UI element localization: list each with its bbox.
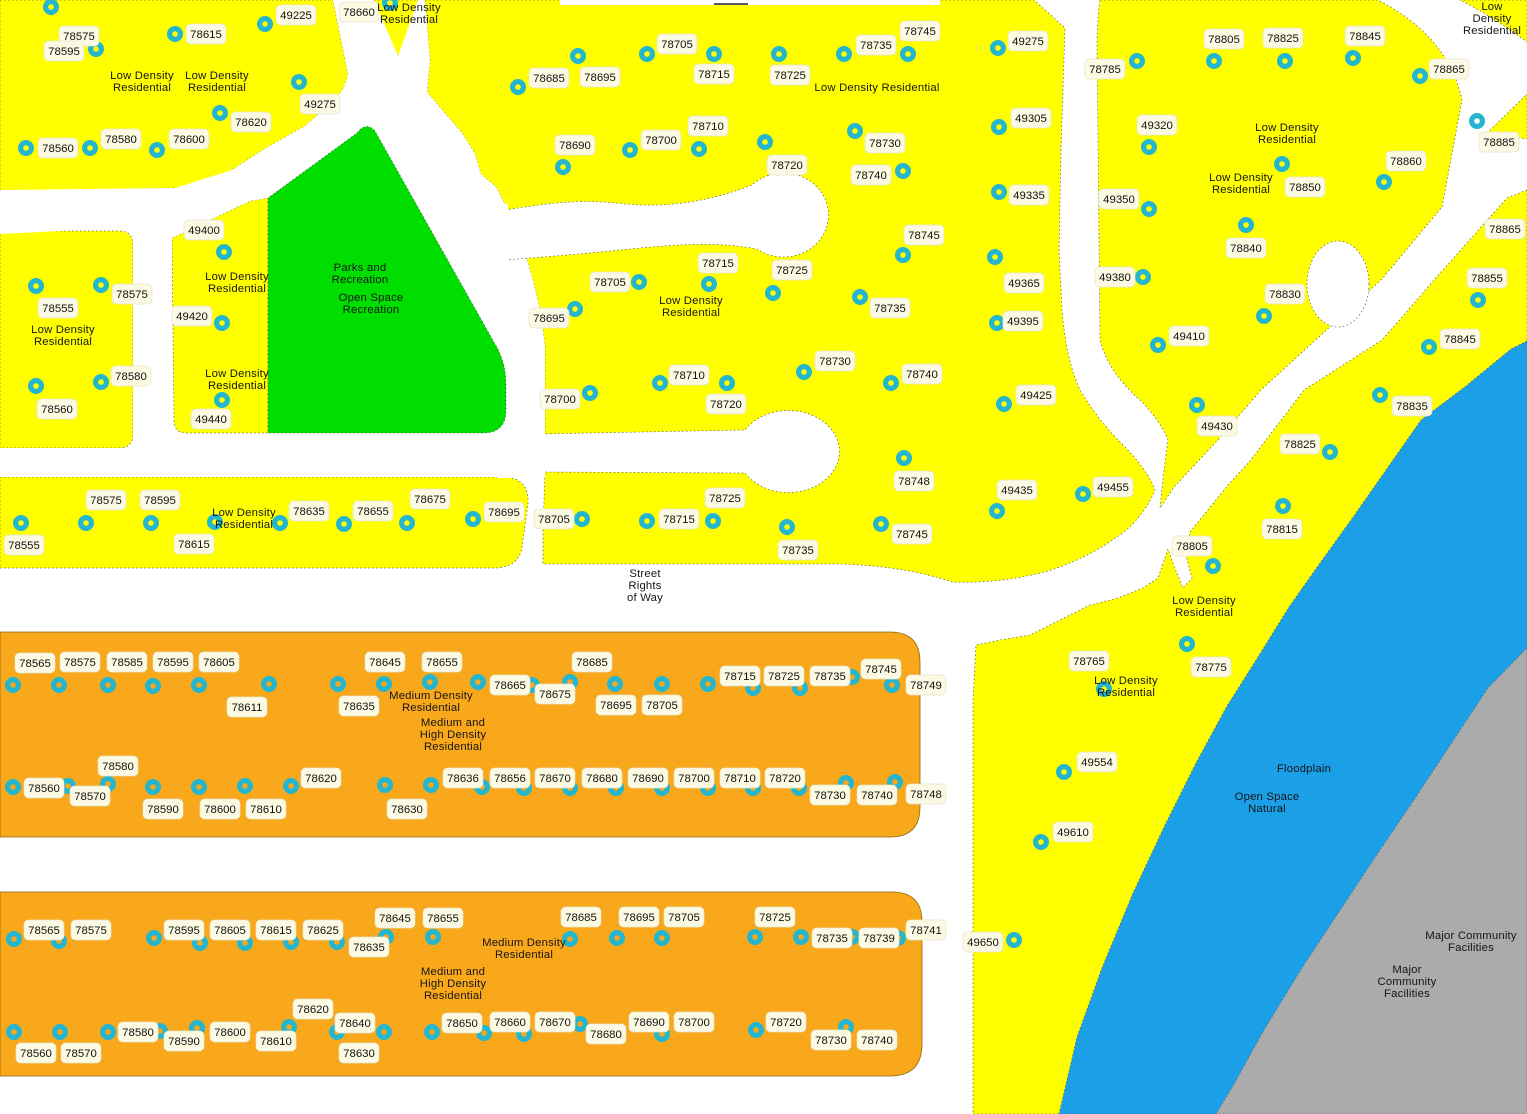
svg-text:78700: 78700 — [544, 394, 576, 406]
svg-text:Low DensityResidential: Low DensityResidential — [1209, 172, 1273, 196]
svg-text:78720: 78720 — [770, 1017, 802, 1029]
svg-text:78640: 78640 — [339, 1018, 371, 1030]
svg-text:78715: 78715 — [702, 258, 734, 270]
svg-text:Low DensityResidential: Low DensityResidential — [31, 324, 95, 348]
svg-text:78660: 78660 — [494, 1017, 526, 1029]
svg-text:78765: 78765 — [1073, 656, 1105, 668]
svg-text:78735: 78735 — [816, 933, 848, 945]
svg-text:78805: 78805 — [1176, 541, 1208, 553]
svg-text:78835: 78835 — [1396, 401, 1428, 413]
svg-text:78575: 78575 — [116, 289, 148, 301]
svg-text:78860: 78860 — [1390, 156, 1422, 168]
svg-text:78690: 78690 — [632, 773, 664, 785]
svg-text:78685: 78685 — [565, 912, 597, 924]
svg-text:78685: 78685 — [533, 73, 565, 85]
svg-text:Low DensityResidential: Low DensityResidential — [212, 507, 276, 531]
svg-text:78705: 78705 — [594, 277, 626, 289]
svg-text:78660: 78660 — [343, 7, 375, 19]
svg-text:Low DensityResidential: Low DensityResidential — [205, 271, 269, 295]
svg-text:78705: 78705 — [661, 39, 693, 51]
svg-text:78595: 78595 — [157, 657, 189, 669]
svg-text:78685: 78685 — [576, 657, 608, 669]
svg-text:78745: 78745 — [865, 664, 897, 676]
svg-text:78615: 78615 — [178, 539, 210, 551]
svg-text:49400: 49400 — [188, 225, 220, 237]
svg-text:78775: 78775 — [1195, 662, 1227, 674]
svg-text:78645: 78645 — [379, 913, 411, 925]
svg-text:78575: 78575 — [75, 925, 107, 937]
svg-text:78745: 78745 — [908, 230, 940, 242]
svg-text:78635: 78635 — [353, 942, 385, 954]
svg-text:78748: 78748 — [910, 789, 942, 801]
svg-text:49430: 49430 — [1201, 421, 1233, 433]
svg-text:Low DensityResidential: Low DensityResidential — [1255, 122, 1319, 146]
svg-text:78656: 78656 — [494, 773, 526, 785]
svg-text:78680: 78680 — [590, 1029, 622, 1041]
svg-text:78825: 78825 — [1284, 439, 1316, 451]
svg-text:49305: 49305 — [1015, 113, 1047, 125]
svg-text:StreetRightsof Way: StreetRightsof Way — [627, 568, 663, 604]
svg-text:78560: 78560 — [41, 404, 73, 416]
svg-text:78720: 78720 — [710, 399, 742, 411]
svg-text:78570: 78570 — [65, 1048, 97, 1060]
svg-text:Floodplain: Floodplain — [1277, 763, 1331, 775]
svg-text:78600: 78600 — [173, 134, 205, 146]
svg-text:78700: 78700 — [678, 773, 710, 785]
svg-text:78710: 78710 — [724, 773, 756, 785]
svg-text:49425: 49425 — [1020, 390, 1052, 402]
svg-text:Parks andRecreation: Parks andRecreation — [332, 262, 389, 286]
svg-text:78720: 78720 — [769, 773, 801, 785]
svg-text:78720: 78720 — [771, 160, 803, 172]
svg-text:78675: 78675 — [539, 689, 571, 701]
svg-text:78670: 78670 — [539, 1017, 571, 1029]
svg-text:49380: 49380 — [1099, 272, 1131, 284]
svg-text:78741: 78741 — [910, 925, 942, 937]
svg-text:78865: 78865 — [1489, 224, 1521, 236]
svg-text:78636: 78636 — [447, 773, 479, 785]
svg-text:Open SpaceRecreation: Open SpaceRecreation — [339, 292, 404, 316]
svg-text:49455: 49455 — [1097, 482, 1129, 494]
svg-text:78725: 78725 — [768, 671, 800, 683]
svg-text:78785: 78785 — [1089, 64, 1121, 76]
svg-text:78670: 78670 — [539, 773, 571, 785]
svg-text:49335: 49335 — [1013, 190, 1045, 202]
svg-text:78675: 78675 — [414, 494, 446, 506]
svg-text:78590: 78590 — [168, 1036, 200, 1048]
svg-text:Low DensityResidential: Low DensityResidential — [110, 70, 174, 94]
svg-text:78825: 78825 — [1267, 33, 1299, 45]
svg-text:78725: 78725 — [709, 493, 741, 505]
svg-text:78620: 78620 — [305, 773, 337, 785]
svg-text:49225: 49225 — [280, 10, 312, 22]
svg-text:78690: 78690 — [633, 1017, 665, 1029]
svg-text:78580: 78580 — [122, 1027, 154, 1039]
svg-text:78565: 78565 — [19, 658, 51, 670]
svg-text:78570: 78570 — [74, 791, 106, 803]
svg-text:78705: 78705 — [668, 912, 700, 924]
svg-text:78850: 78850 — [1289, 182, 1321, 194]
svg-text:Low DensityResidential: Low DensityResidential — [1094, 675, 1158, 699]
svg-text:78730: 78730 — [819, 356, 851, 368]
svg-text:78715: 78715 — [698, 69, 730, 81]
svg-text:78830: 78830 — [1269, 289, 1301, 301]
svg-text:78885: 78885 — [1483, 137, 1515, 149]
svg-text:78740: 78740 — [906, 369, 938, 381]
svg-text:Medium andHigh DensityResident: Medium andHigh DensityResidential — [420, 966, 487, 1002]
svg-text:78739: 78739 — [863, 933, 895, 945]
svg-text:78630: 78630 — [391, 804, 423, 816]
svg-text:78725: 78725 — [776, 265, 808, 277]
svg-text:78730: 78730 — [869, 138, 901, 150]
svg-text:78865: 78865 — [1433, 64, 1465, 76]
svg-text:78700: 78700 — [678, 1017, 710, 1029]
svg-text:78560: 78560 — [42, 143, 74, 155]
svg-text:78580: 78580 — [102, 761, 134, 773]
svg-text:78845: 78845 — [1349, 31, 1381, 43]
svg-text:78655: 78655 — [426, 657, 458, 669]
svg-text:78695: 78695 — [600, 700, 632, 712]
svg-text:49440: 49440 — [195, 414, 227, 426]
svg-text:78740: 78740 — [861, 790, 893, 802]
svg-text:78610: 78610 — [250, 804, 282, 816]
svg-text:78560: 78560 — [20, 1048, 52, 1060]
svg-text:78615: 78615 — [260, 925, 292, 937]
svg-text:78695: 78695 — [623, 912, 655, 924]
svg-text:78745: 78745 — [896, 529, 928, 541]
svg-text:78615: 78615 — [190, 29, 222, 41]
svg-text:78745: 78745 — [904, 26, 936, 38]
svg-text:78645: 78645 — [369, 657, 401, 669]
svg-text:78695: 78695 — [533, 313, 565, 325]
svg-text:78635: 78635 — [293, 506, 325, 518]
svg-text:78815: 78815 — [1266, 524, 1298, 536]
svg-text:Low DensityResidential: Low DensityResidential — [205, 368, 269, 392]
svg-text:78611: 78611 — [232, 702, 263, 714]
svg-text:78725: 78725 — [774, 70, 806, 82]
svg-text:78735: 78735 — [874, 303, 906, 315]
svg-text:78715: 78715 — [724, 671, 756, 683]
svg-text:49275: 49275 — [1012, 36, 1044, 48]
svg-text:78580: 78580 — [105, 134, 137, 146]
svg-text:78565: 78565 — [28, 925, 60, 937]
svg-text:78595: 78595 — [168, 925, 200, 937]
svg-text:49650: 49650 — [967, 937, 999, 949]
svg-text:78740: 78740 — [861, 1035, 893, 1047]
svg-text:78845: 78845 — [1444, 334, 1476, 346]
svg-text:49275: 49275 — [304, 99, 336, 111]
svg-text:78620: 78620 — [297, 1004, 329, 1016]
svg-text:78695: 78695 — [584, 72, 616, 84]
svg-text:78710: 78710 — [692, 121, 724, 133]
svg-text:49350: 49350 — [1103, 194, 1135, 206]
svg-text:78585: 78585 — [111, 657, 143, 669]
svg-text:49610: 49610 — [1057, 827, 1089, 839]
svg-text:78665: 78665 — [494, 680, 526, 692]
svg-text:78690: 78690 — [559, 140, 591, 152]
svg-text:78695: 78695 — [488, 507, 520, 519]
svg-text:49365: 49365 — [1008, 278, 1040, 290]
svg-text:78650: 78650 — [446, 1018, 478, 1030]
svg-text:Low DensityResidential: Low DensityResidential — [377, 2, 441, 26]
svg-text:Low Density Residential: Low Density Residential — [814, 82, 939, 94]
svg-text:78590: 78590 — [147, 804, 179, 816]
svg-text:78620: 78620 — [235, 117, 267, 129]
svg-text:78595: 78595 — [48, 46, 80, 58]
svg-text:78680: 78680 — [586, 773, 618, 785]
svg-text:49435: 49435 — [1001, 485, 1033, 497]
svg-text:78625: 78625 — [307, 925, 339, 937]
svg-text:78605: 78605 — [203, 657, 235, 669]
svg-text:78555: 78555 — [8, 540, 40, 552]
svg-text:78555: 78555 — [42, 303, 74, 315]
svg-text:78710: 78710 — [673, 370, 705, 382]
svg-text:Low DensityResidential: Low DensityResidential — [659, 295, 723, 319]
svg-text:78600: 78600 — [214, 1027, 246, 1039]
svg-text:Low DensityResidential: Low DensityResidential — [185, 70, 249, 94]
svg-text:49554: 49554 — [1081, 757, 1113, 769]
svg-text:78635: 78635 — [343, 701, 375, 713]
svg-text:78700: 78700 — [645, 135, 677, 147]
svg-text:78560: 78560 — [28, 783, 60, 795]
svg-text:78748: 78748 — [898, 476, 930, 488]
svg-text:78735: 78735 — [860, 40, 892, 52]
svg-text:78580: 78580 — [115, 371, 147, 383]
svg-text:78655: 78655 — [357, 506, 389, 518]
svg-text:Low DensityResidential: Low DensityResidential — [1172, 595, 1236, 619]
svg-text:78600: 78600 — [204, 804, 236, 816]
svg-text:78730: 78730 — [814, 790, 846, 802]
svg-text:78595: 78595 — [144, 495, 176, 507]
svg-text:78725: 78725 — [759, 912, 791, 924]
svg-text:78749: 78749 — [910, 680, 942, 692]
svg-text:Medium andHigh DensityResident: Medium andHigh DensityResidential — [420, 717, 487, 753]
svg-text:78575: 78575 — [90, 495, 122, 507]
svg-text:78735: 78735 — [814, 671, 846, 683]
svg-text:78730: 78730 — [815, 1035, 847, 1047]
svg-text:78740: 78740 — [855, 170, 887, 182]
svg-text:49395: 49395 — [1007, 316, 1039, 328]
svg-text:78715: 78715 — [663, 514, 695, 526]
svg-text:49410: 49410 — [1173, 331, 1205, 343]
svg-text:78575: 78575 — [64, 657, 96, 669]
svg-text:78705: 78705 — [538, 514, 570, 526]
svg-text:78805: 78805 — [1208, 34, 1240, 46]
svg-text:78630: 78630 — [343, 1048, 375, 1060]
svg-text:78855: 78855 — [1471, 273, 1503, 285]
svg-text:78605: 78605 — [214, 925, 246, 937]
svg-text:78610: 78610 — [260, 1036, 292, 1048]
svg-text:78655: 78655 — [427, 913, 459, 925]
svg-text:78735: 78735 — [782, 545, 814, 557]
svg-text:49320: 49320 — [1141, 120, 1173, 132]
svg-text:78705: 78705 — [646, 700, 678, 712]
svg-text:49420: 49420 — [176, 311, 208, 323]
svg-text:78840: 78840 — [1230, 243, 1262, 255]
